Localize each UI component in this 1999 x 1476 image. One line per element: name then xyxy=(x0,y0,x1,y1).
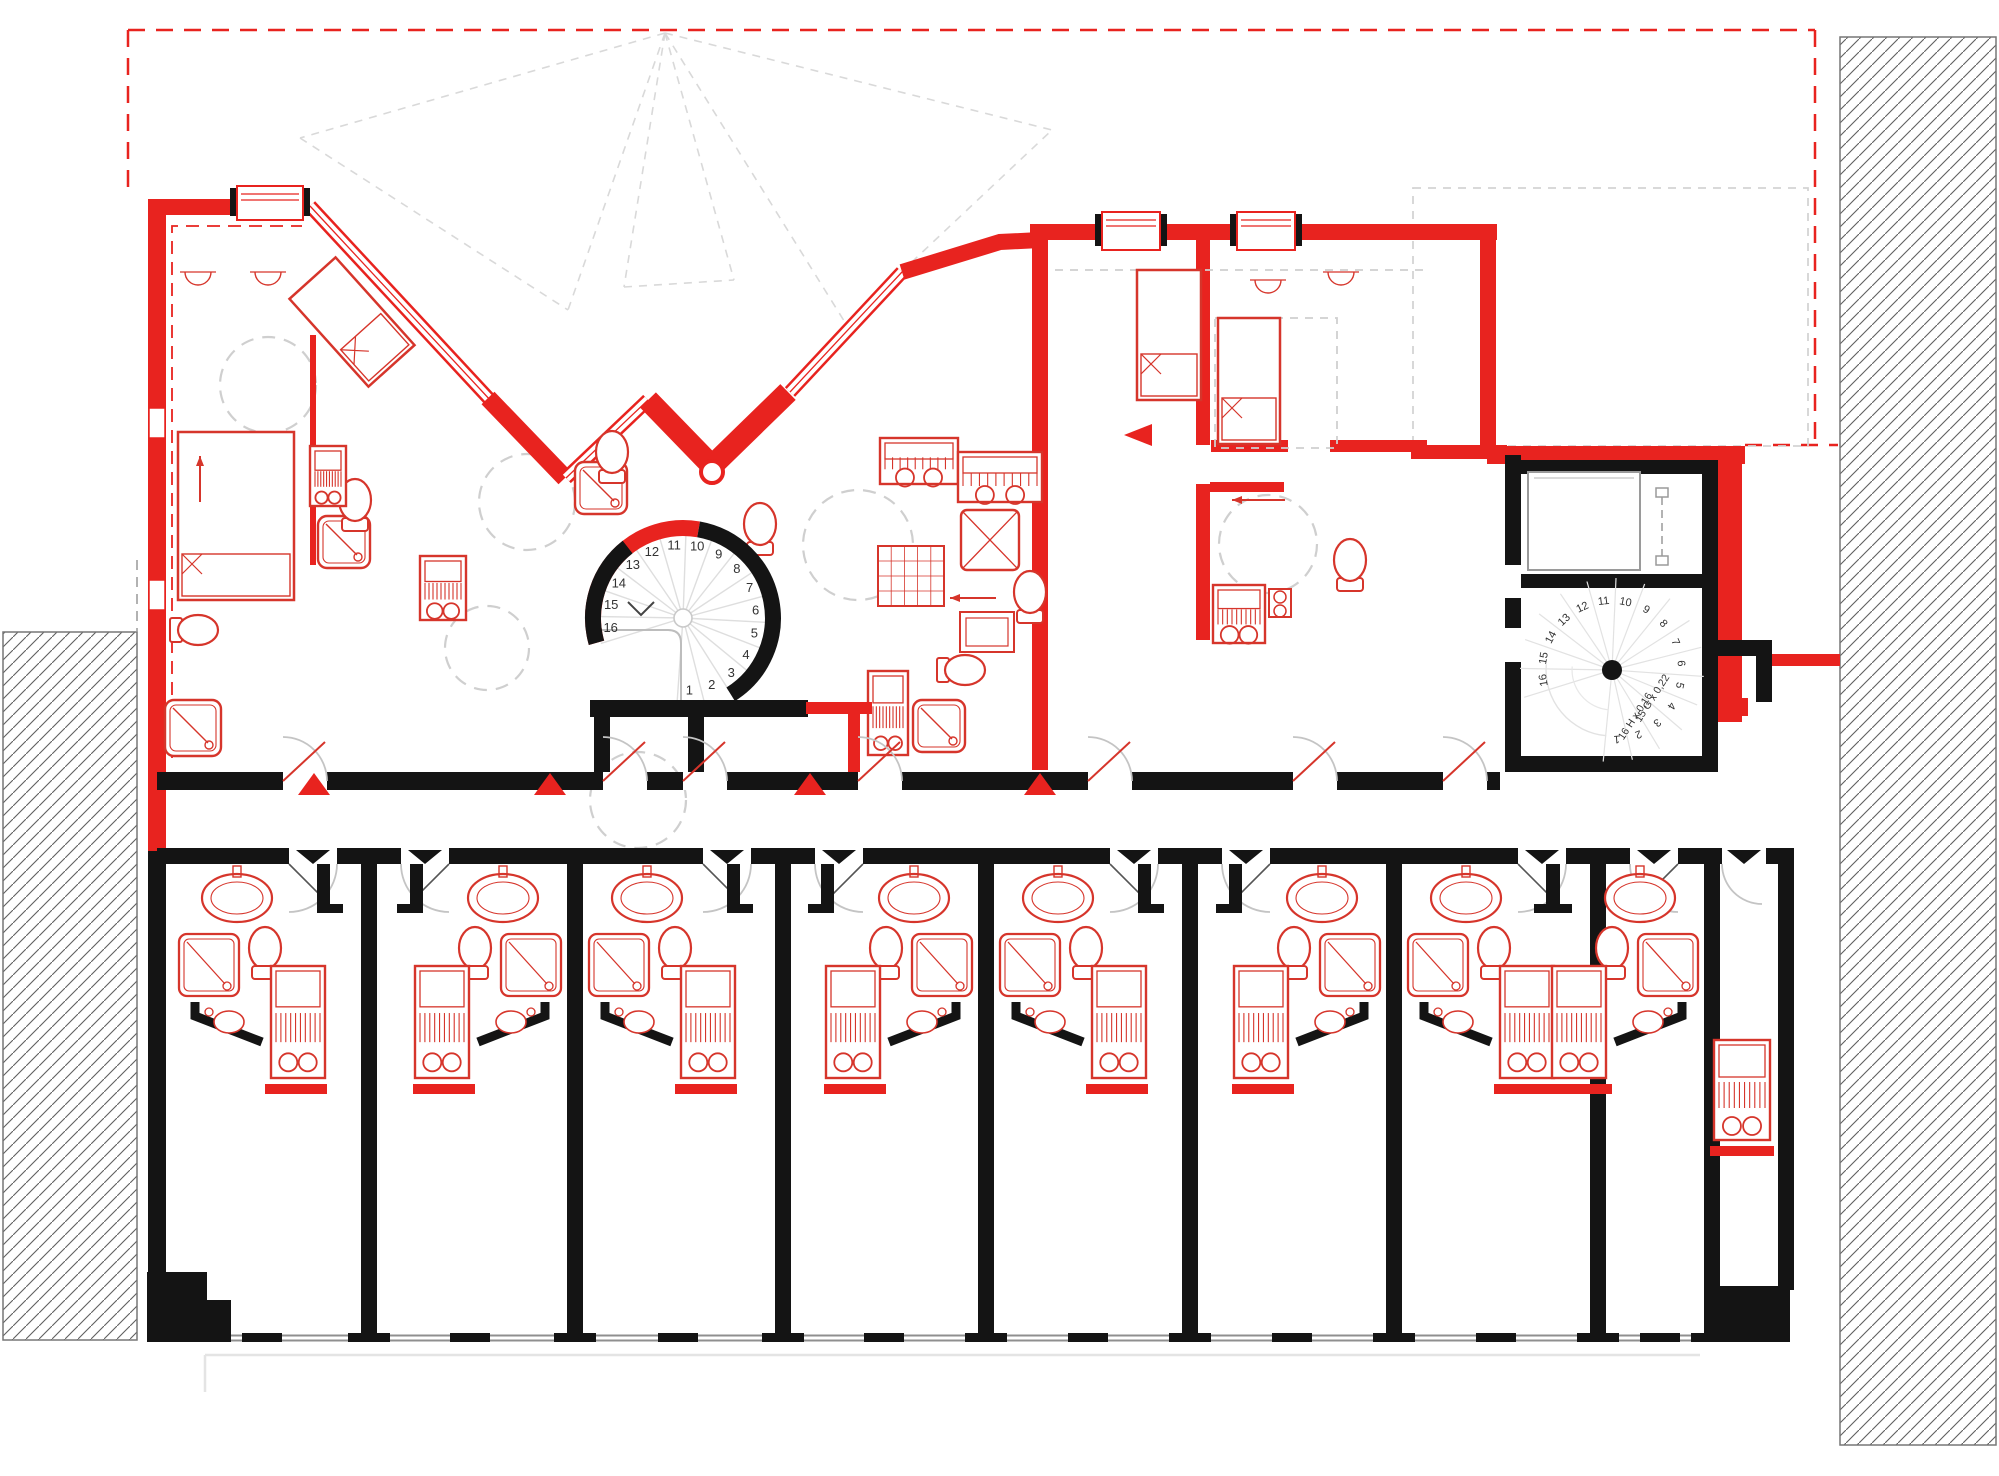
kitchenette-icon xyxy=(415,966,469,1078)
stair-step-number: 11 xyxy=(667,538,681,553)
kitchenette-icon xyxy=(1092,966,1146,1078)
shower-icon xyxy=(501,934,561,996)
kitchenette-icon xyxy=(826,966,880,1078)
stair-step-number: 16 xyxy=(1537,673,1551,687)
threshold-bar xyxy=(675,1084,737,1094)
toilet-icon xyxy=(1014,571,1046,623)
stair-step-number: 6 xyxy=(752,602,759,617)
shower-icon xyxy=(165,700,221,756)
stair-step-number: 13 xyxy=(626,557,640,572)
shower-icon xyxy=(1320,934,1380,996)
stair-step-number: 10 xyxy=(1618,595,1632,609)
stair-step-number: 11 xyxy=(1597,595,1610,608)
kitchenette-icon xyxy=(420,556,466,620)
kitchenette-icon xyxy=(880,438,958,487)
stair-step-number: 4 xyxy=(742,647,749,662)
bed-icon xyxy=(1137,270,1201,400)
threshold-bar xyxy=(1232,1084,1294,1094)
threshold-bar xyxy=(1550,1084,1612,1094)
kitchenette-icon xyxy=(271,966,325,1078)
stair-step-number: 16 xyxy=(603,620,617,635)
shower-icon xyxy=(1000,934,1060,996)
shower-icon xyxy=(589,934,649,996)
toilet-icon xyxy=(170,615,218,645)
stair-step-number: 1 xyxy=(686,683,693,698)
kitchenette-icon xyxy=(310,446,346,506)
shower-icon xyxy=(179,934,239,996)
neighbor-building-left-hatch xyxy=(3,560,137,1340)
neighbor-building-right-hatch xyxy=(1840,37,1996,1445)
floor-plan-page: 1 2 3 4 5 6 7 8 9 10 11 12 13 14 15 16 1… xyxy=(0,0,1999,1476)
stair-step-number: 6 xyxy=(1674,660,1686,667)
toilet-icon xyxy=(1334,539,1366,591)
stair-step-number: 7 xyxy=(746,580,753,595)
stair-step-number: 10 xyxy=(690,538,704,553)
threshold-bar xyxy=(265,1084,327,1094)
shower-icon xyxy=(913,700,965,752)
threshold-bar xyxy=(824,1084,886,1094)
threshold-bar xyxy=(1086,1084,1148,1094)
stair-step-number: 5 xyxy=(751,625,758,640)
stair-step-number: 15 xyxy=(604,597,618,612)
kitchenette-icon xyxy=(1552,966,1606,1078)
toilet-icon xyxy=(596,431,628,483)
bed-icon xyxy=(1218,318,1280,444)
toilet-icon xyxy=(937,655,985,685)
stair-step-number: 15 xyxy=(1537,651,1551,665)
stair-step-number: 8 xyxy=(733,561,740,576)
shower-icon xyxy=(961,510,1019,570)
threshold-bar xyxy=(413,1084,475,1094)
floor-plan-drawing: 1 2 3 4 5 6 7 8 9 10 11 12 13 14 15 16 1… xyxy=(0,0,1999,1476)
kitchenette-icon xyxy=(1500,966,1554,1078)
kitchenette-icon xyxy=(868,671,908,755)
shower-icon xyxy=(1638,934,1698,996)
stair-step-number: 2 xyxy=(708,677,715,692)
stair-step-number: 9 xyxy=(715,546,722,561)
shower-icon xyxy=(1408,934,1468,996)
bed-icon xyxy=(178,432,294,600)
stair-step-number: 12 xyxy=(645,544,659,559)
shower-icon xyxy=(878,546,944,606)
threshold-bar xyxy=(1494,1084,1556,1094)
kitchenette-icon xyxy=(681,966,735,1078)
stair-step-number: 3 xyxy=(728,665,735,680)
stair-step-number: 14 xyxy=(612,575,626,590)
kitchenette-icon xyxy=(1714,1040,1770,1140)
washbasin-icon xyxy=(960,612,1014,652)
kitchenette-icon xyxy=(1234,966,1288,1078)
kitchenette-icon xyxy=(958,452,1042,504)
shower-icon xyxy=(912,934,972,996)
